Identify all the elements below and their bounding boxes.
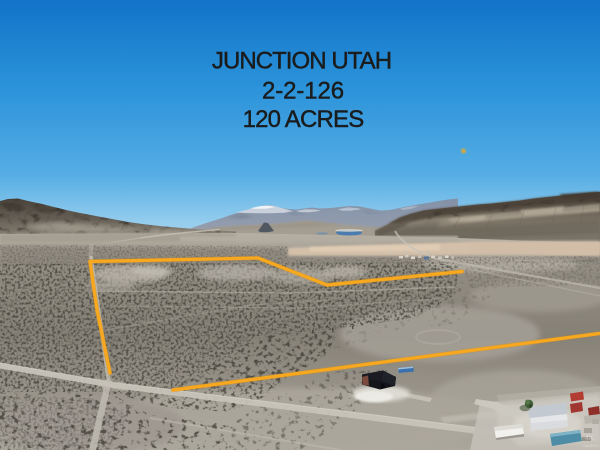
svg-text:2-2-126: 2-2-126 bbox=[262, 78, 344, 105]
svg-text:120 ACRES: 120 ACRES bbox=[243, 106, 364, 133]
svg-text:CAMERA: CAMERA bbox=[582, 443, 599, 448]
svg-text:4K: 4K bbox=[585, 435, 594, 442]
svg-text:JUNCTION UTAH: JUNCTION UTAH bbox=[212, 48, 391, 75]
